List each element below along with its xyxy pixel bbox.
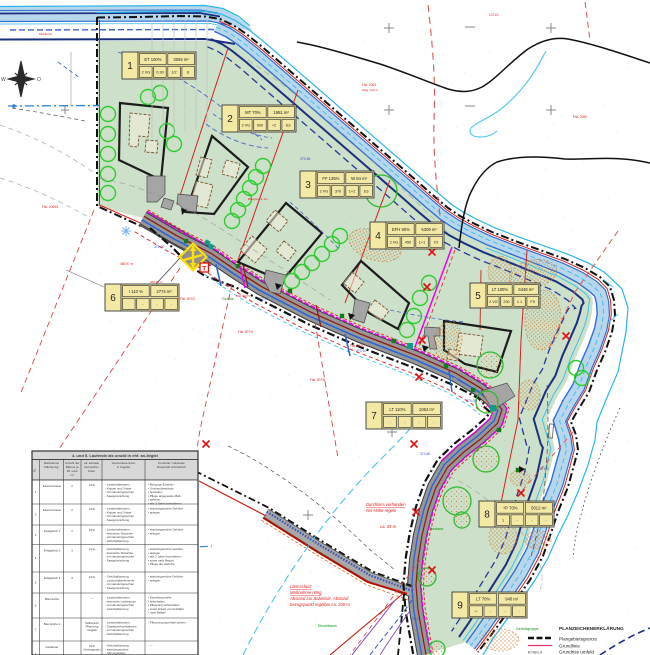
svg-text:3: 3 bbox=[305, 180, 311, 191]
svg-text:370: 370 bbox=[335, 189, 341, 193]
svg-text:E3: E3 bbox=[286, 123, 291, 127]
svg-text:(Vertragsnat.): (Vertragsnat.) bbox=[83, 648, 101, 652]
svg-text:9: 9 bbox=[457, 601, 463, 612]
svg-text:371,9: 371,9 bbox=[540, 467, 549, 471]
svg-text:• anlegen: • anlegen bbox=[148, 578, 160, 582]
svg-text:Flst. 2065/1: Flst. 2065/1 bbox=[42, 205, 59, 209]
svg-text:FF 135%: FF 135% bbox=[322, 176, 339, 181]
svg-text:- Pflanzung dauerhaft sichern: - Pflanzung dauerhaft sichern bbox=[148, 621, 186, 625]
svg-text:FFH: FFH bbox=[89, 483, 95, 487]
svg-text:Dauerhaft erforderlich: Dauerhaft erforderlich bbox=[157, 465, 186, 469]
svg-text:- Saatgutmischung: - Saatgutmischung bbox=[105, 558, 129, 562]
svg-text:Extensivwiese: Extensivwiese bbox=[43, 508, 62, 512]
svg-text:K=0m d: K=0m d bbox=[528, 650, 542, 655]
svg-text:in Angabe: in Angabe bbox=[117, 465, 131, 469]
svg-text:230: 230 bbox=[503, 300, 509, 304]
svg-text:- Saatgutmischung: - Saatgutmischung bbox=[105, 518, 129, 522]
svg-text:2 VG: 2 VG bbox=[390, 240, 399, 244]
svg-text:Grundriss umfeld: Grundriss umfeld bbox=[559, 650, 594, 655]
svg-text:4. und 5. Laufende als umzid i: 4. und 5. Laufende als umzid in ehf. an-… bbox=[72, 453, 158, 458]
svg-text:FFH: FFH bbox=[89, 528, 95, 532]
svg-text:• nach Bedarf: • nach Bedarf bbox=[148, 611, 166, 615]
svg-text:1 1: 1 1 bbox=[517, 300, 522, 304]
svg-text:5309 m²: 5309 m² bbox=[421, 227, 437, 232]
svg-text:2 VG: 2 VG bbox=[242, 123, 251, 127]
svg-text:372,45: 372,45 bbox=[258, 297, 268, 301]
svg-text:- Gehölzpflanzung: - Gehölzpflanzung bbox=[105, 607, 129, 611]
svg-text:Baumreihe: Baumreihe bbox=[45, 597, 59, 601]
svg-text:374,05: 374,05 bbox=[466, 399, 476, 403]
svg-text:+P 70%: +P 70% bbox=[503, 506, 518, 511]
svg-text:Flst. 907/4: Flst. 907/4 bbox=[236, 294, 250, 298]
svg-text:500: 500 bbox=[257, 123, 263, 127]
svg-text:m²: m² bbox=[70, 473, 74, 477]
svg-text:Durchlass vorhanden: Durchlass vorhanden bbox=[366, 502, 406, 507]
svg-text:FFH: FFH bbox=[89, 507, 95, 511]
svg-text:+2: +2 bbox=[272, 123, 276, 127]
svg-text:FFH: FFH bbox=[89, 575, 95, 579]
svg-text:PLANZEICHENERKLÄRUNG: PLANZEICHENERKLÄRUNG bbox=[559, 625, 624, 632]
svg-text:1+1: 1+1 bbox=[419, 240, 425, 244]
svg-text:450: 450 bbox=[405, 240, 411, 244]
svg-text:373,10: 373,10 bbox=[356, 349, 366, 353]
svg-text:940 m²: 940 m² bbox=[505, 597, 519, 602]
svg-text:8: 8 bbox=[484, 510, 490, 521]
svg-text:Gehölz: Gehölz bbox=[222, 297, 234, 301]
svg-text:Extensivwiese: Extensivwiese bbox=[43, 484, 62, 488]
svg-text:LT 100%: LT 100% bbox=[492, 287, 509, 292]
svg-text:ca. 35 m: ca. 35 m bbox=[380, 524, 397, 529]
svg-text:- Gehölzpflanzung: - Gehölzpflanzung bbox=[105, 539, 129, 543]
svg-text:5012 m²: 5012 m² bbox=[531, 506, 547, 511]
svg-text:Nr.: Nr. bbox=[33, 468, 37, 472]
svg-text:2 VG: 2 VG bbox=[489, 300, 498, 304]
svg-text:- Gehölzpflanzung: - Gehölzpflanzung bbox=[105, 632, 129, 636]
svg-text:2 VG: 2 VG bbox=[142, 70, 151, 74]
svg-text:FFH: FFH bbox=[89, 548, 95, 552]
svg-text:W: W bbox=[1, 77, 6, 83]
svg-text:Abstand zur Bahnlinie, Abstand: Abstand zur Bahnlinie, Abstand bbox=[289, 596, 349, 601]
svg-text:- Saatgutmischung: - Saatgutmischung bbox=[105, 586, 129, 590]
svg-text:1+2: 1+2 bbox=[349, 189, 355, 193]
svg-text:Bestand: Bestand bbox=[430, 527, 443, 531]
svg-text:371,20: 371,20 bbox=[154, 245, 164, 249]
svg-text:Flst. 2060: Flst. 2060 bbox=[573, 115, 587, 119]
svg-text:Maßnahme nötig: Maßnahme nötig bbox=[290, 590, 322, 595]
svg-text:Feldgehölz 3: Feldgehölz 3 bbox=[44, 576, 61, 580]
svg-text:F2: F2 bbox=[434, 240, 438, 244]
svg-text:W 84 m²: W 84 m² bbox=[351, 176, 367, 181]
svg-text:1: 1 bbox=[127, 61, 133, 72]
svg-text:möglich: möglich bbox=[87, 628, 97, 632]
svg-text:• anlegen: • anlegen bbox=[148, 510, 160, 514]
svg-text:375,3: 375,3 bbox=[410, 617, 419, 621]
svg-text:1/2: 1/2 bbox=[171, 70, 176, 74]
svg-text:5: 5 bbox=[475, 291, 481, 302]
svg-text:Gewässer: Gewässer bbox=[45, 645, 58, 649]
svg-text:NN-Höhe regeln: NN-Höhe regeln bbox=[366, 508, 397, 513]
svg-text:6: 6 bbox=[110, 293, 116, 304]
svg-text:bezugspunkt regelbar ca. 200 m: bezugspunkt regelbar ca. 200 m bbox=[290, 602, 350, 607]
svg-text:Feldgehölz 1: Feldgehölz 1 bbox=[44, 529, 61, 533]
svg-text:E: E bbox=[187, 70, 190, 74]
svg-text:Plangebietsgrenze: Plangebietsgrenze bbox=[559, 637, 597, 642]
svg-text:Einzelbaum: Einzelbaum bbox=[318, 624, 337, 628]
svg-text:Flächentyp: Flächentyp bbox=[44, 465, 59, 469]
svg-text:Lärmschutz: Lärmschutz bbox=[290, 584, 313, 589]
svg-text:Weg 4,00 m: Weg 4,00 m bbox=[362, 88, 379, 92]
svg-text:2774 m²: 2774 m² bbox=[156, 289, 172, 294]
svg-text:Arten: Arten bbox=[88, 469, 96, 473]
svg-text:Flst. 907/2: Flst. 907/2 bbox=[180, 297, 195, 301]
svg-text:LT 70%: LT 70% bbox=[476, 597, 490, 602]
svg-text:- —: - — bbox=[148, 644, 153, 648]
svg-text:MT 70%: MT 70% bbox=[245, 110, 261, 115]
svg-text:- Saatgutmischung: - Saatgutmischung bbox=[105, 494, 129, 498]
svg-text:466,97 m: 466,97 m bbox=[120, 262, 134, 266]
svg-text:• Pflege der Gehölze: • Pflege der Gehölze bbox=[148, 562, 175, 566]
svg-text:466,07 m: 466,07 m bbox=[150, 280, 163, 284]
svg-text:Baumreihe 2: Baumreihe 2 bbox=[44, 622, 61, 626]
svg-text:EFH 90%: EFH 90% bbox=[392, 227, 410, 232]
svg-text:4: 4 bbox=[375, 231, 381, 242]
svg-text:E3: E3 bbox=[364, 189, 369, 193]
svg-text:3094 m²: 3094 m² bbox=[173, 57, 189, 62]
svg-text:• alle 2 Jahre kontrollieren: • alle 2 Jahre kontrollieren bbox=[148, 502, 182, 506]
svg-text:Flst. 907/7: Flst. 907/7 bbox=[350, 344, 365, 348]
svg-text:T: T bbox=[202, 266, 206, 273]
svg-text:2 VG: 2 VG bbox=[320, 189, 329, 193]
svg-text:—: — bbox=[91, 596, 94, 600]
svg-text:Gehölzgruppe: Gehölzgruppe bbox=[516, 627, 539, 631]
svg-text:F9: F9 bbox=[530, 300, 534, 304]
svg-text:Baugrenze 3m: Baugrenze 3m bbox=[248, 197, 268, 201]
svg-text:1371/1: 1371/1 bbox=[489, 13, 499, 17]
svg-text:I 110 %: I 110 % bbox=[129, 289, 143, 294]
svg-text:7: 7 bbox=[371, 411, 377, 422]
svg-text:Flst. 907/8: Flst. 907/8 bbox=[310, 378, 325, 382]
svg-text:370,55: 370,55 bbox=[300, 157, 310, 161]
svg-text:Feldgehölz 2: Feldgehölz 2 bbox=[44, 549, 61, 553]
svg-text:• anlegen: • anlegen bbox=[148, 531, 160, 535]
svg-text:ET 100%: ET 100% bbox=[144, 57, 161, 62]
svg-text:0,30: 0,30 bbox=[156, 70, 163, 74]
svg-text:Mühlbach: Mühlbach bbox=[39, 32, 52, 36]
svg-text:Flst. 2063: Flst. 2063 bbox=[362, 83, 376, 87]
svg-text:2: 2 bbox=[227, 114, 233, 125]
svg-text:1064 m²: 1064 m² bbox=[419, 407, 435, 412]
svg-text:6446 m²: 6446 m² bbox=[518, 287, 534, 292]
svg-text:1981 m²: 1981 m² bbox=[273, 110, 289, 115]
svg-text:1: 1 bbox=[502, 519, 504, 523]
svg-text:Grundlinie: Grundlinie bbox=[559, 644, 580, 649]
svg-text:O: O bbox=[37, 77, 41, 83]
svg-text:374,80: 374,80 bbox=[420, 452, 430, 456]
svg-text:LT 110%: LT 110% bbox=[389, 407, 405, 412]
svg-text:Flst. 907/5: Flst. 907/5 bbox=[238, 330, 253, 334]
